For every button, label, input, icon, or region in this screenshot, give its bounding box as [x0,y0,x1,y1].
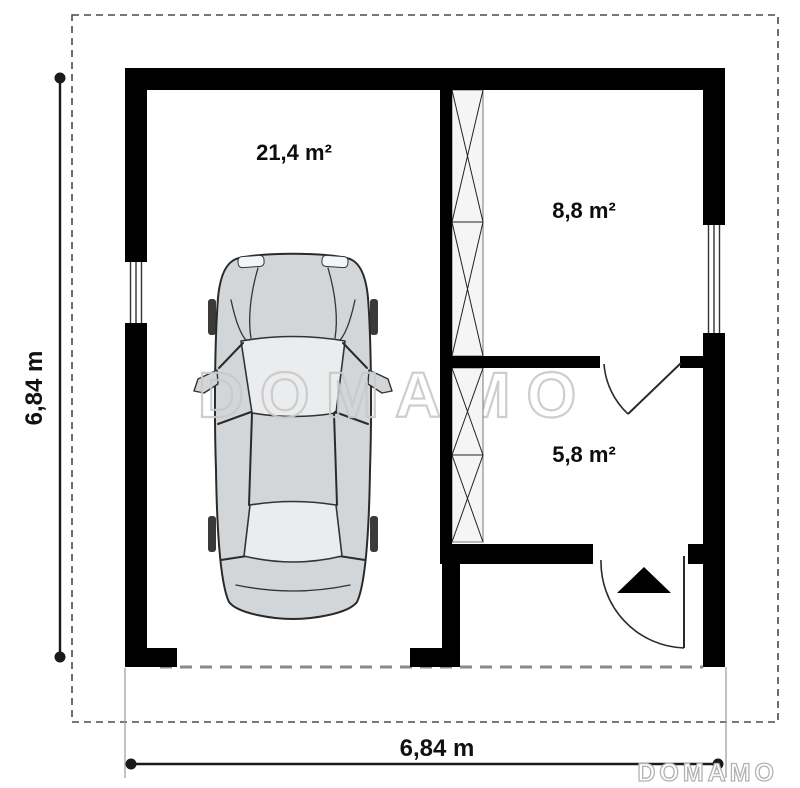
watermark-center: DOMAMO [198,359,593,431]
dimension-bottom-label: 6,84 m [400,735,475,762]
wall-top [125,68,725,90]
wall-interior-vertical [440,90,452,564]
wall-left [125,68,147,667]
floor-plan-drawing: DOMAMO [0,0,800,788]
wall-right [703,68,725,667]
wall-room-bottom [448,544,593,564]
car-headlight-left [238,255,265,268]
room-label-top-right: 8,8 m² [552,198,616,223]
wall-bottom-left-stub [125,648,177,667]
wall-between-rooms-right-stub [680,356,703,368]
room-label-garage: 21,4 m² [256,140,332,165]
dimension-left-label: 6,84 m [21,351,48,426]
vent-shaft-upper [452,90,483,356]
wall-entrance-right-stub [688,544,703,564]
room-label-bottom-right: 5,8 m² [552,442,616,467]
wall-between-rooms-left [440,356,600,368]
floor-plan-page: DOMAMO [0,0,800,788]
vent-shaft-lower [452,368,483,542]
car-body [215,254,371,619]
car-rear-window [244,502,342,563]
window-right [703,225,725,333]
window-left [125,262,147,323]
car-top-view [194,254,392,619]
watermark-footer-logo: DOMAMO [637,759,778,787]
car-headlight-right [322,255,349,268]
wall-bottom-middle-stub [410,648,460,667]
